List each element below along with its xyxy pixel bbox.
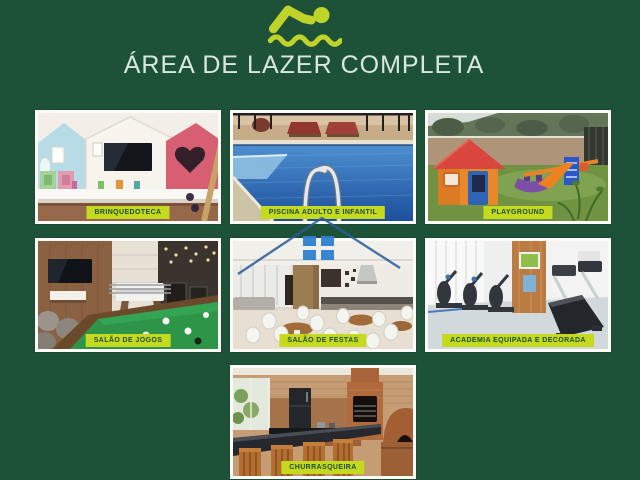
card-playground: PLAYGROUND	[425, 110, 611, 224]
photo-salao-de-jogos: SALÃO DE JOGOS	[38, 241, 218, 349]
label-piscina: PISCINA ADULTO E INFANTIL	[261, 206, 385, 219]
label-brinquedoteca: BRINQUEDOTECA	[86, 206, 169, 219]
fridge	[289, 388, 311, 432]
label-salao-de-jogos: SALÃO DE JOGOS	[86, 334, 171, 347]
card-academia: ACADEMIA EQUIPADA E DECORADA	[425, 238, 611, 352]
flyer-background: { "colors": { "background": "#1E5238", "…	[0, 0, 640, 480]
card-brinquedoteca: BRINQUEDOTECA	[35, 110, 221, 224]
card-salao-de-jogos: SALÃO DE JOGOS	[35, 238, 221, 352]
card-piscina: PISCINA ADULTO E INFANTIL	[230, 110, 416, 224]
tv	[104, 143, 152, 171]
photo-brinquedoteca: BRINQUEDOTECA	[38, 113, 218, 221]
photo-playground: PLAYGROUND	[428, 113, 608, 221]
card-churrasqueira: CHURRASQUEIRA	[230, 365, 416, 479]
label-salao-de-festas: SALÃO DE FESTAS	[279, 334, 366, 347]
photo-piscina: PISCINA ADULTO E INFANTIL	[233, 113, 413, 221]
card-salao-de-festas: SALÃO DE FESTAS	[230, 238, 416, 352]
photo-churrasqueira: CHURRASQUEIRA	[233, 368, 413, 476]
swimmer-icon	[266, 3, 342, 49]
photo-academia: ACADEMIA EQUIPADA E DECORADA	[428, 241, 608, 349]
label-churrasqueira: CHURRASQUEIRA	[281, 461, 364, 474]
photo-salao-de-festas: SALÃO DE FESTAS	[233, 241, 413, 349]
label-academia: ACADEMIA EQUIPADA E DECORADA	[442, 334, 594, 347]
tv	[48, 259, 92, 283]
page-title: ÁREA DE LAZER COMPLETA	[0, 51, 608, 80]
label-playground: PLAYGROUND	[483, 206, 552, 219]
